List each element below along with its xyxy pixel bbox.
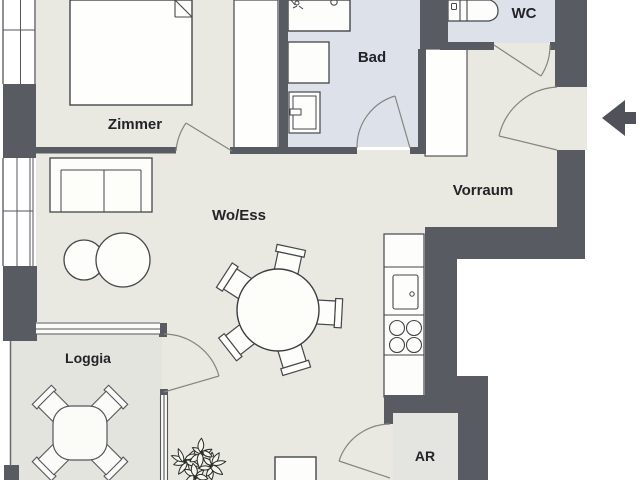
svg-text:AR: AR (415, 448, 435, 464)
svg-text:Wo/Ess: Wo/Ess (212, 207, 266, 224)
svg-text:WC: WC (512, 5, 537, 22)
svg-text:Loggia: Loggia (65, 350, 111, 366)
svg-text:Zimmer: Zimmer (108, 116, 162, 133)
svg-text:Vorraum: Vorraum (453, 182, 514, 199)
svg-text:Bad: Bad (358, 49, 386, 66)
